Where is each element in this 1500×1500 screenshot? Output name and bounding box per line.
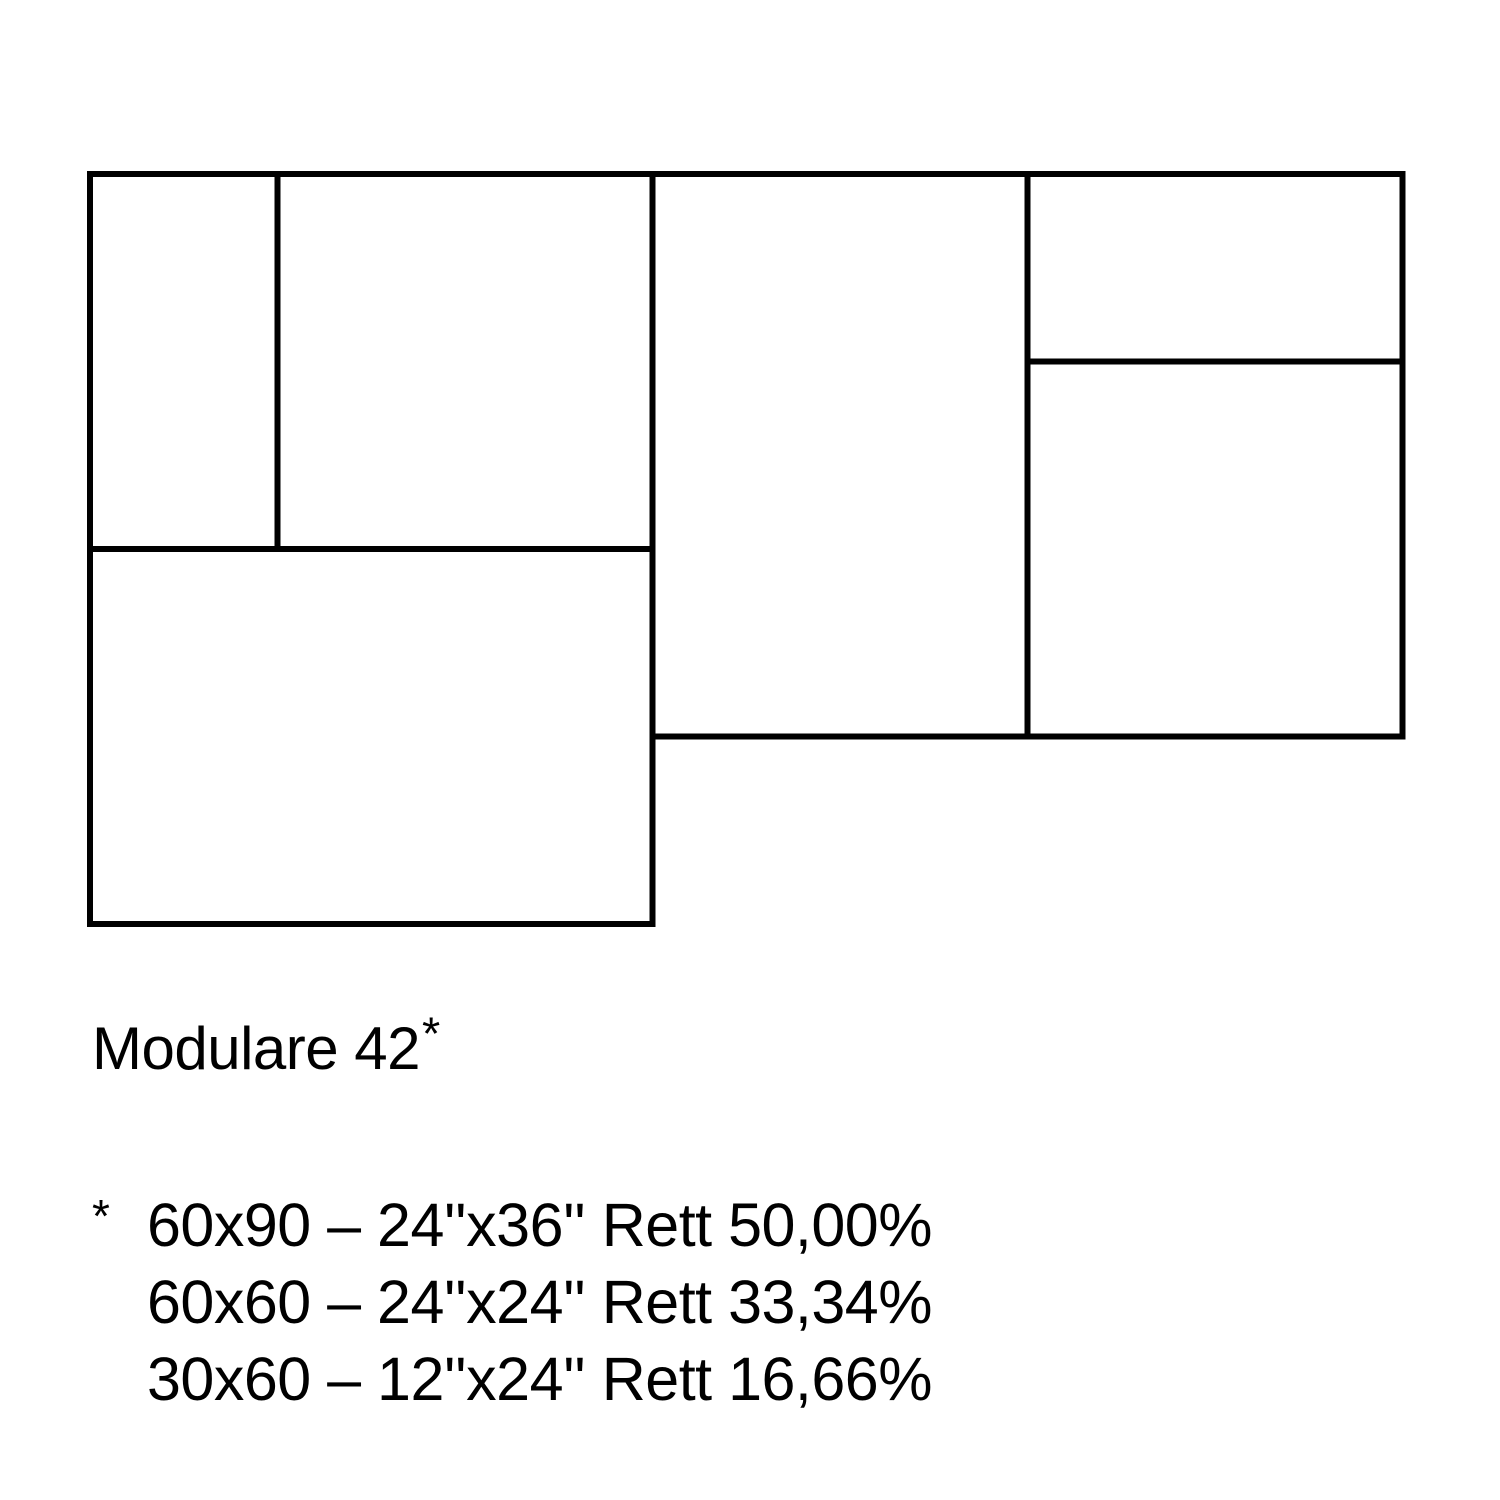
legend: * 60x90 – 24''x36'' Rett 50,00% 60x60 – …: [92, 1187, 932, 1418]
tile-60x60-right: [1028, 362, 1403, 737]
tile-60x90-landscape: [90, 549, 653, 924]
tile-60x90-portrait: [653, 174, 1028, 737]
legend-item-60x60: 60x60 – 24''x24'' Rett 33,34%: [147, 1264, 932, 1341]
title-asterisk: *: [422, 1005, 440, 1061]
legend-item-60x90: 60x90 – 24''x36'' Rett 50,00%: [147, 1187, 932, 1264]
tile-spec-page: Modulare 42* * 60x90 – 24''x36'' Rett 50…: [0, 0, 1500, 1500]
page-title: Modulare 42*: [92, 1013, 440, 1085]
legend-asterisk: *: [92, 1187, 147, 1239]
legend-lines: 60x90 – 24''x36'' Rett 50,00% 60x60 – 24…: [147, 1187, 932, 1418]
page-title-text: Modulare 42: [92, 1015, 420, 1082]
tile-30x60-landscape: [1028, 174, 1403, 362]
tile-30x60-portrait: [90, 174, 278, 549]
legend-item-30x60: 30x60 – 12''x24'' Rett 16,66%: [147, 1341, 932, 1418]
tile-60x60-top-left: [278, 174, 653, 549]
